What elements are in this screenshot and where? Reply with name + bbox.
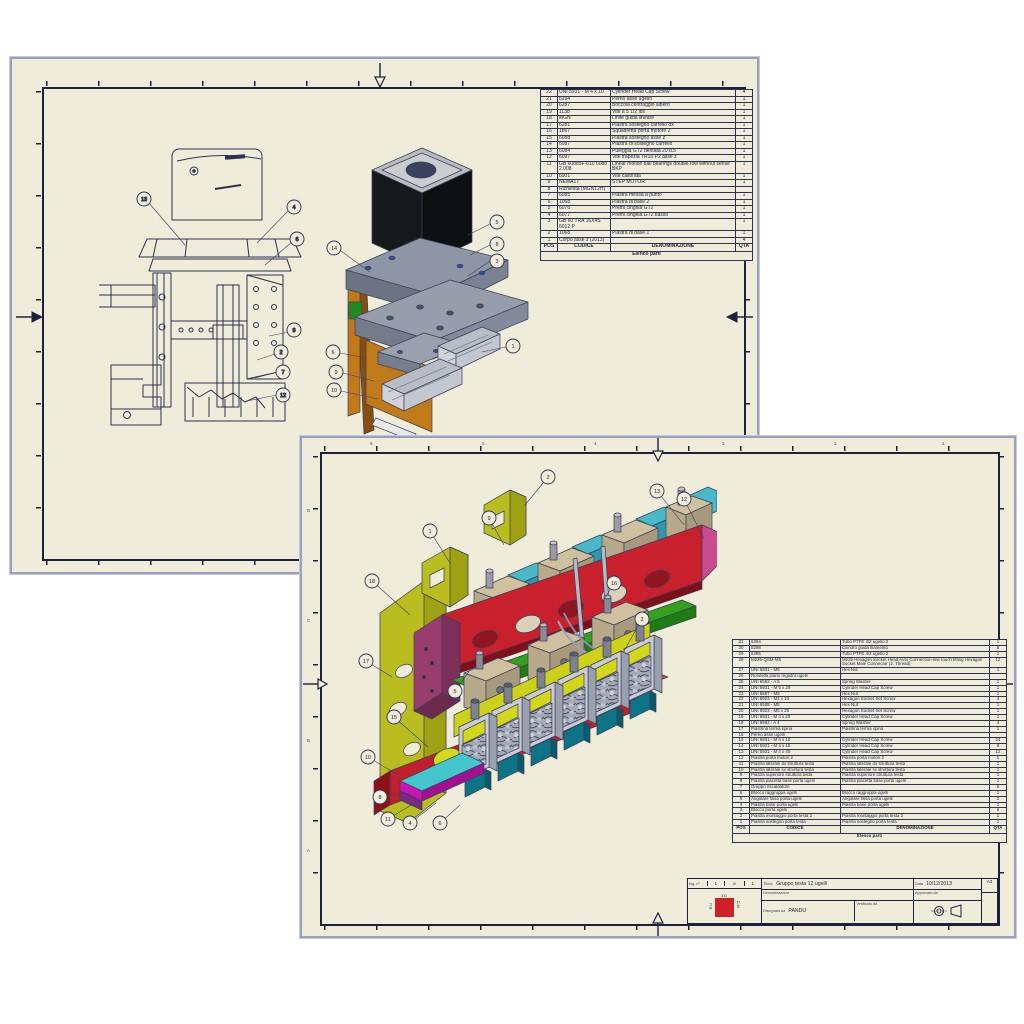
logo-letters-right: DM bbox=[736, 901, 740, 909]
svg-text:8: 8 bbox=[378, 795, 381, 801]
parts-list-table-sheet2: 316294Tubo PTFE 4/2 ugello 21306298Cilin… bbox=[732, 639, 1007, 843]
sheet2-center-arrow-top bbox=[651, 438, 665, 463]
svg-text:12: 12 bbox=[280, 393, 286, 399]
svg-text:17: 17 bbox=[363, 659, 369, 665]
sheet-number: 1 bbox=[707, 881, 725, 886]
parts-list-table-sheet1: 22UNI 5931 - M 4 x 10Cylinder Head Cap S… bbox=[540, 89, 753, 261]
grid-label: D bbox=[307, 508, 310, 513]
logo-letters-left: BU bbox=[709, 902, 713, 909]
svg-text:18: 18 bbox=[369, 579, 375, 585]
svg-text:3: 3 bbox=[640, 617, 643, 623]
grid-label: 2 bbox=[834, 441, 837, 446]
balloon-callouts: 13 4 6 9 2 7 12 bbox=[137, 192, 304, 402]
sheet1-center-arrow-right bbox=[725, 310, 753, 324]
svg-text:9: 9 bbox=[292, 328, 295, 334]
title-label: Titolo: bbox=[762, 882, 774, 887]
company-logo bbox=[715, 898, 734, 917]
date-label: Data bbox=[914, 882, 924, 887]
svg-text:10: 10 bbox=[365, 755, 371, 761]
drawing-sheet-2: 6 5 4 3 2 1 D C B A bbox=[300, 436, 1016, 938]
svg-text:12: 12 bbox=[681, 497, 687, 503]
grid-label: 4 bbox=[594, 441, 597, 446]
assembly-isometric-view: 2 9 1 13 12 18 17 5 15 10 8 11 4 6 3 16 bbox=[352, 463, 717, 883]
svg-text:4: 4 bbox=[292, 205, 295, 211]
col-header-pos: POS bbox=[733, 826, 750, 834]
svg-text:13: 13 bbox=[654, 489, 660, 495]
checked-by-label: Verificato da bbox=[855, 901, 913, 906]
date-value: 10/12/2013 bbox=[924, 881, 954, 887]
sheet2-center-arrow-left bbox=[303, 677, 329, 691]
sheet1-center-arrow-top bbox=[373, 63, 387, 89]
grid-label: 3 bbox=[722, 441, 725, 446]
grid-label: B bbox=[307, 738, 310, 743]
svg-text:9: 9 bbox=[334, 370, 337, 376]
projection-symbol bbox=[931, 904, 965, 918]
col-header-qta: QTA bbox=[990, 826, 1007, 834]
svg-text:14: 14 bbox=[331, 246, 337, 252]
svg-text:3: 3 bbox=[495, 259, 498, 265]
sheet-total: 1 bbox=[744, 881, 762, 886]
grid-label: 6 bbox=[370, 441, 373, 446]
parts-row: 28M225-QSM-M5M225 Hexagon Socket Head Au… bbox=[733, 657, 1007, 668]
grid-label: 1 bbox=[942, 441, 945, 446]
svg-text:16: 16 bbox=[611, 581, 617, 587]
col-header-codice: CODICE bbox=[750, 826, 841, 834]
svg-text:6: 6 bbox=[438, 821, 441, 827]
sheet1-center-arrow-left bbox=[16, 310, 44, 324]
grid-label: C bbox=[307, 618, 310, 623]
elenco-parti-title: Elenco parti bbox=[733, 834, 1007, 843]
svg-text:15: 15 bbox=[391, 715, 397, 721]
sheet-number-label: fog. n° bbox=[688, 881, 707, 886]
svg-text:1: 1 bbox=[428, 529, 431, 535]
svg-text:11: 11 bbox=[385, 817, 391, 823]
svg-text:10: 10 bbox=[331, 388, 337, 394]
svg-text:9: 9 bbox=[487, 516, 490, 522]
parts-row: 3GB 60 TRA 16X4S 6012 P1 bbox=[541, 219, 753, 231]
parts-row: 11GB 60885F-610 6088 2.008Linear motion … bbox=[541, 161, 753, 173]
denominazione-label: Denominazione bbox=[762, 890, 913, 895]
svg-text:2: 2 bbox=[546, 475, 549, 481]
elenco-parti-title: Elenco parti bbox=[541, 252, 753, 261]
drawing-title: Gruppo testa 12 ugelli bbox=[774, 881, 829, 887]
col-header-denominazione: DENOMINAZIONE bbox=[841, 826, 990, 834]
grid-label: 5 bbox=[482, 441, 485, 446]
grid-label: A bbox=[307, 848, 310, 853]
svg-text:1: 1 bbox=[511, 344, 514, 350]
svg-text:6: 6 bbox=[295, 237, 298, 243]
title-block: fog. n° 1 di 1 BU 3D DM Titolo: bbox=[687, 878, 998, 924]
svg-text:7: 7 bbox=[281, 370, 284, 376]
magenta-end-plate bbox=[414, 615, 460, 719]
isometric-assembly-view: 5 8 3 1 14 6 9 10 bbox=[320, 130, 530, 442]
of-label: di bbox=[724, 881, 744, 886]
sheet2-center-arrow-bottom bbox=[651, 911, 665, 936]
drawn-by: PANDU bbox=[786, 908, 808, 914]
svg-text:6: 6 bbox=[331, 350, 334, 356]
paper-format: A3 bbox=[987, 879, 993, 884]
col-header-qta: QTA bbox=[736, 244, 753, 252]
page: 13 4 6 9 2 7 12 bbox=[0, 0, 1024, 1024]
svg-text:5: 5 bbox=[495, 220, 498, 226]
col-header-codice: CODICE bbox=[558, 244, 611, 252]
svg-text:5: 5 bbox=[453, 689, 456, 695]
svg-text:2: 2 bbox=[279, 350, 282, 356]
col-header-pos: POS bbox=[541, 244, 558, 252]
approved-by-label: Approvato da bbox=[914, 890, 981, 895]
drawn-by-label: Disegnato da bbox=[762, 909, 786, 914]
svg-text:13: 13 bbox=[141, 197, 147, 203]
wireframe-assembly-view: 13 4 6 9 2 7 12 bbox=[97, 135, 317, 427]
svg-text:4: 4 bbox=[408, 821, 411, 827]
svg-text:8: 8 bbox=[495, 242, 498, 248]
sheet1-ticks-top bbox=[46, 81, 740, 86]
col-header-denominazione: DENOMINAZIONE bbox=[611, 244, 736, 252]
